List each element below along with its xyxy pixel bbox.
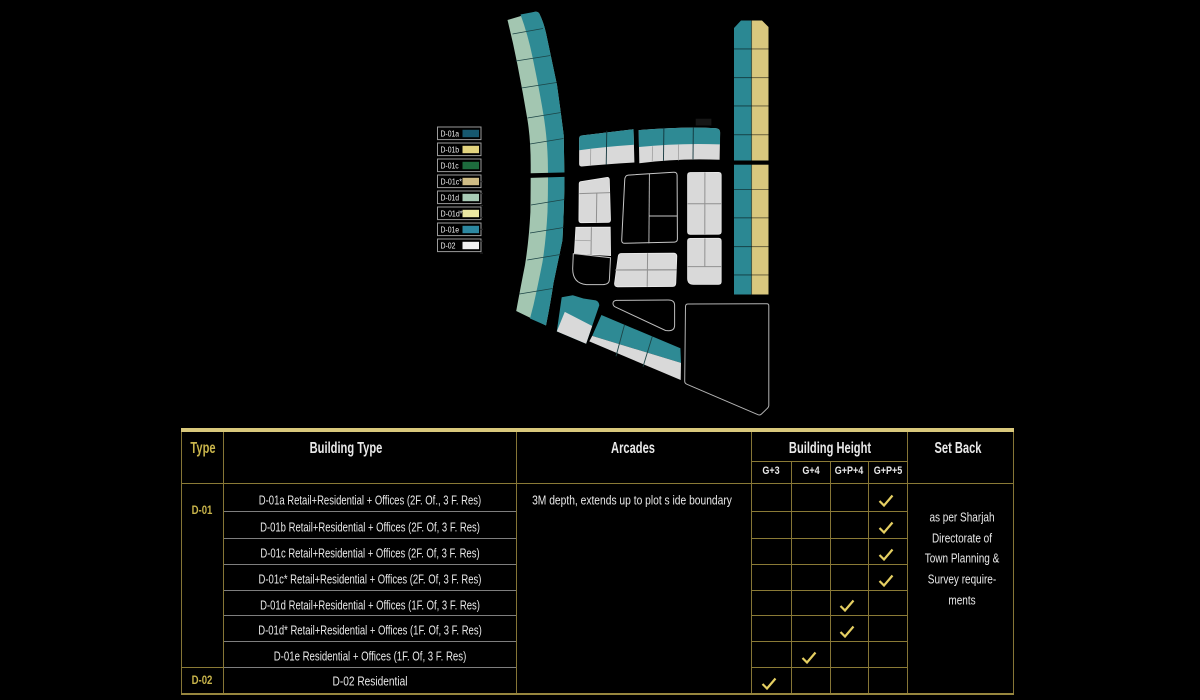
svg-text:D-01d*: D-01d* [441,209,464,219]
svg-text:D-01a: D-01a [441,129,460,139]
svg-text:D-01d: D-01d [441,193,460,203]
svg-text:D-01c*: D-01c* [441,177,463,187]
svg-text:D-01c: D-01c [441,161,459,171]
svg-text:D-01e: D-01e [441,225,460,235]
svg-text:D-01b: D-01b [441,145,460,155]
svg-text:D-02: D-02 [441,241,456,251]
